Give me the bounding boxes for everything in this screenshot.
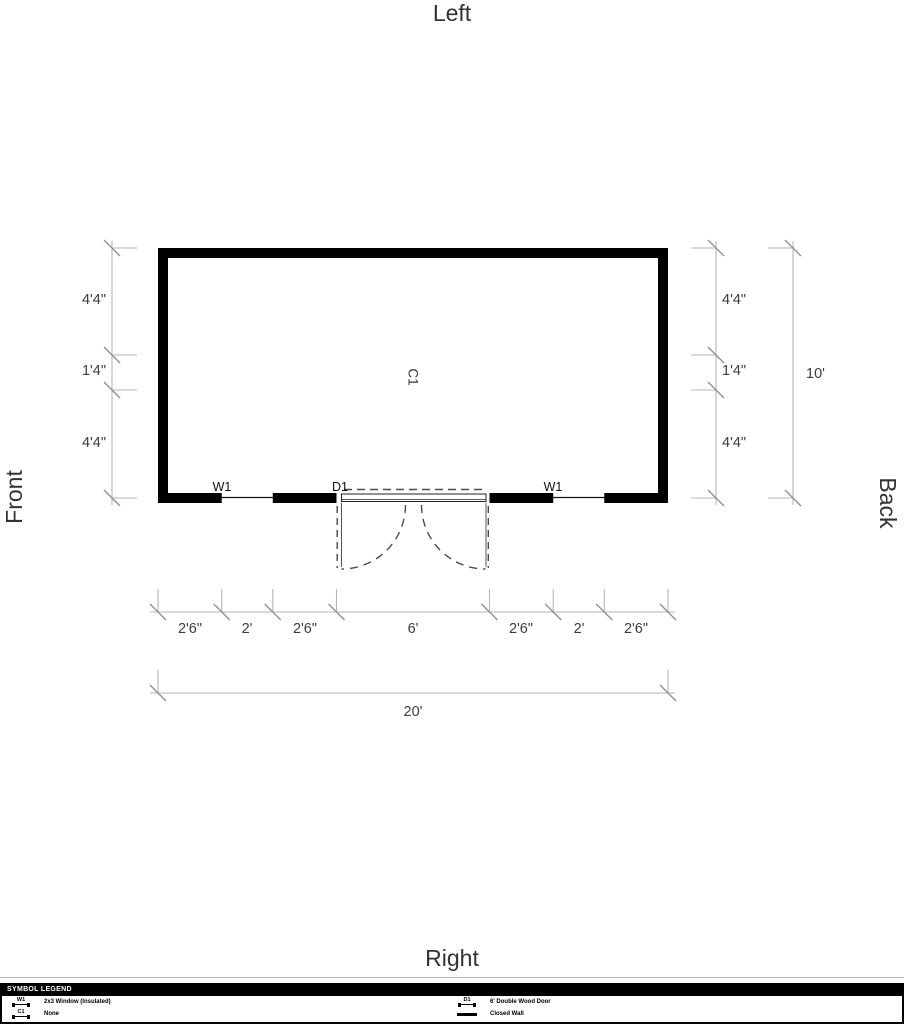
legend-item-label: 2x3 Window (Insulated) [44, 999, 111, 1005]
window-legend-icon: W1 [8, 997, 34, 1007]
dimension-bottom-total [150, 670, 676, 701]
dim-bottom-4: 6' [378, 621, 448, 637]
legend-item-door: D1 6' Double Wood Door [454, 996, 551, 1008]
door-symbol [337, 490, 490, 570]
window-left-label: W1 [204, 480, 240, 494]
area-line-glyph [12, 1015, 30, 1019]
window-right-symbol [553, 493, 604, 504]
legend-body: W1 2x3 Window (Insulated) C1 None D1 6' … [2, 996, 902, 1022]
side-title-back: Back [874, 458, 902, 548]
legend-item-label: None [44, 1011, 59, 1017]
dim-left-2: 1'4" [36, 363, 106, 379]
dimension-left [104, 240, 137, 506]
dim-left-3: 4'4" [36, 435, 106, 451]
legend-item-window: W1 2x3 Window (Insulated) [8, 996, 111, 1008]
area-legend-icon: C1 [8, 1009, 34, 1019]
door-line-glyph [458, 1003, 476, 1007]
window-left-symbol [222, 493, 273, 504]
dim-bottom-3: 2'6" [270, 621, 340, 637]
legend-item-label: Closed Wall [490, 1011, 524, 1017]
dim-right-1: 4'4" [722, 292, 746, 308]
window-right-label: W1 [535, 480, 571, 494]
area-label: C1 [403, 357, 423, 398]
window-line-glyph [12, 1003, 30, 1007]
floor-plan-drawing [0, 0, 904, 1024]
dim-right-total: 10' [806, 366, 825, 382]
side-title-front: Front [0, 452, 28, 542]
dimension-bottom-segments [150, 589, 676, 620]
side-title-right: Right [0, 945, 904, 972]
door-label: D1 [322, 480, 358, 494]
legend-header: SYMBOL LEGEND [0, 983, 72, 996]
dim-bottom-7: 2'6" [601, 621, 671, 637]
dim-bottom-total: 20' [378, 704, 448, 720]
floor-plan-page: Left Right Front Back C1 W1 D1 W1 4'4" 1… [0, 0, 904, 1024]
door-legend-icon: D1 [454, 997, 480, 1007]
dim-left-1: 4'4" [36, 292, 106, 308]
dim-right-3: 4'4" [722, 435, 746, 451]
legend-item-label: 6' Double Wood Door [490, 999, 551, 1005]
legend-item-closed-wall: Closed Wall [454, 1008, 524, 1020]
symbol-legend: SYMBOL LEGEND W1 2x3 Window (Insulated) … [0, 983, 904, 1024]
dimension-right-total [768, 240, 801, 506]
legend-separator-line [0, 977, 904, 978]
closed-wall-legend-icon [454, 1013, 480, 1016]
side-title-left: Left [0, 0, 904, 27]
closed-wall-glyph [457, 1013, 477, 1016]
dim-right-2: 1'4" [722, 363, 746, 379]
legend-item-area: C1 None [8, 1008, 59, 1020]
dimension-right-segments [691, 240, 724, 506]
